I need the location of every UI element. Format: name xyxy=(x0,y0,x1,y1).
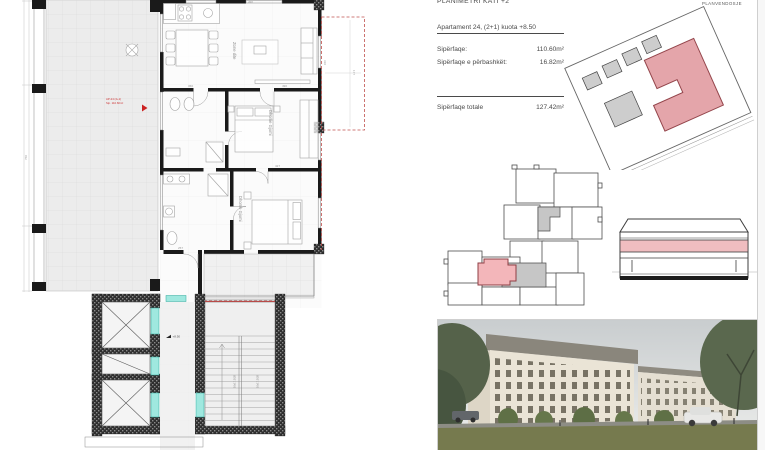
svg-text:490: 490 xyxy=(248,0,253,4)
apartment-title: Apartament 24, (2+1) kuota +8.50 xyxy=(437,24,564,34)
plan-title: PLANIMETRI KATI +2 xyxy=(437,0,509,5)
svg-text:310: 310 xyxy=(323,60,327,65)
grass xyxy=(438,424,758,450)
dimension-lines-left xyxy=(22,0,32,292)
bedroom2-label: Dhome Gjumi xyxy=(238,196,243,222)
dim-label: 760 xyxy=(24,155,28,160)
level-note: +8.50 xyxy=(173,335,181,339)
key-plan xyxy=(438,163,623,308)
apartment-info-panel: Apartament 24, (2+1) kuota +8.50 Sipërfa… xyxy=(437,24,564,114)
render-illustration xyxy=(438,320,758,450)
total-row: Sipërfaqe totale 127.42m² xyxy=(437,101,564,114)
floor-plan-drawing: 760 xyxy=(20,0,380,450)
drawing-sheet: 760 xyxy=(0,0,765,450)
svg-text:366: 366 xyxy=(188,84,193,88)
balcony-bottom xyxy=(204,254,314,298)
svg-text:427: 427 xyxy=(275,164,280,168)
area-label: Sipërfaqe: xyxy=(437,43,467,56)
bedroom1-label: Dhome Gjumi xyxy=(268,110,273,136)
svg-text:490: 490 xyxy=(282,84,287,88)
total-divider xyxy=(437,96,564,97)
elevation-highlight-floor xyxy=(620,240,748,252)
area-row: Sipërfaqe: 110.60m² xyxy=(437,43,564,56)
dim-label: 177 xyxy=(352,70,356,75)
elevation-diagram xyxy=(612,212,764,300)
common-area-label: Sipërfaqe e përbashkët: xyxy=(437,56,507,69)
terrace-left xyxy=(32,0,160,291)
common-area-row: Sipërfaqe e përbashkët: 16.82m² xyxy=(437,56,564,69)
living-label: Zone dite xyxy=(232,42,237,60)
page-edge xyxy=(757,0,765,450)
site-plan xyxy=(558,2,763,170)
svg-text:Sip. 110.60m²: Sip. 110.60m² xyxy=(106,101,123,105)
svg-text:257: 257 xyxy=(178,246,183,250)
terrace-table xyxy=(126,44,138,56)
stairwell: 16x17.5/28 16x17.5/28 xyxy=(205,300,275,426)
elevator-shafts xyxy=(102,302,150,426)
corridor: +8.50 xyxy=(160,302,195,450)
building-render-photo xyxy=(437,319,759,450)
total-label: Sipërfaqe totale xyxy=(437,101,483,114)
core: +8.50 16x17.5/28 16x1 xyxy=(85,294,285,450)
stair-note-1: 16x17.5/28 xyxy=(233,375,237,388)
stair-note-2: 16x17.5/28 xyxy=(256,375,260,388)
